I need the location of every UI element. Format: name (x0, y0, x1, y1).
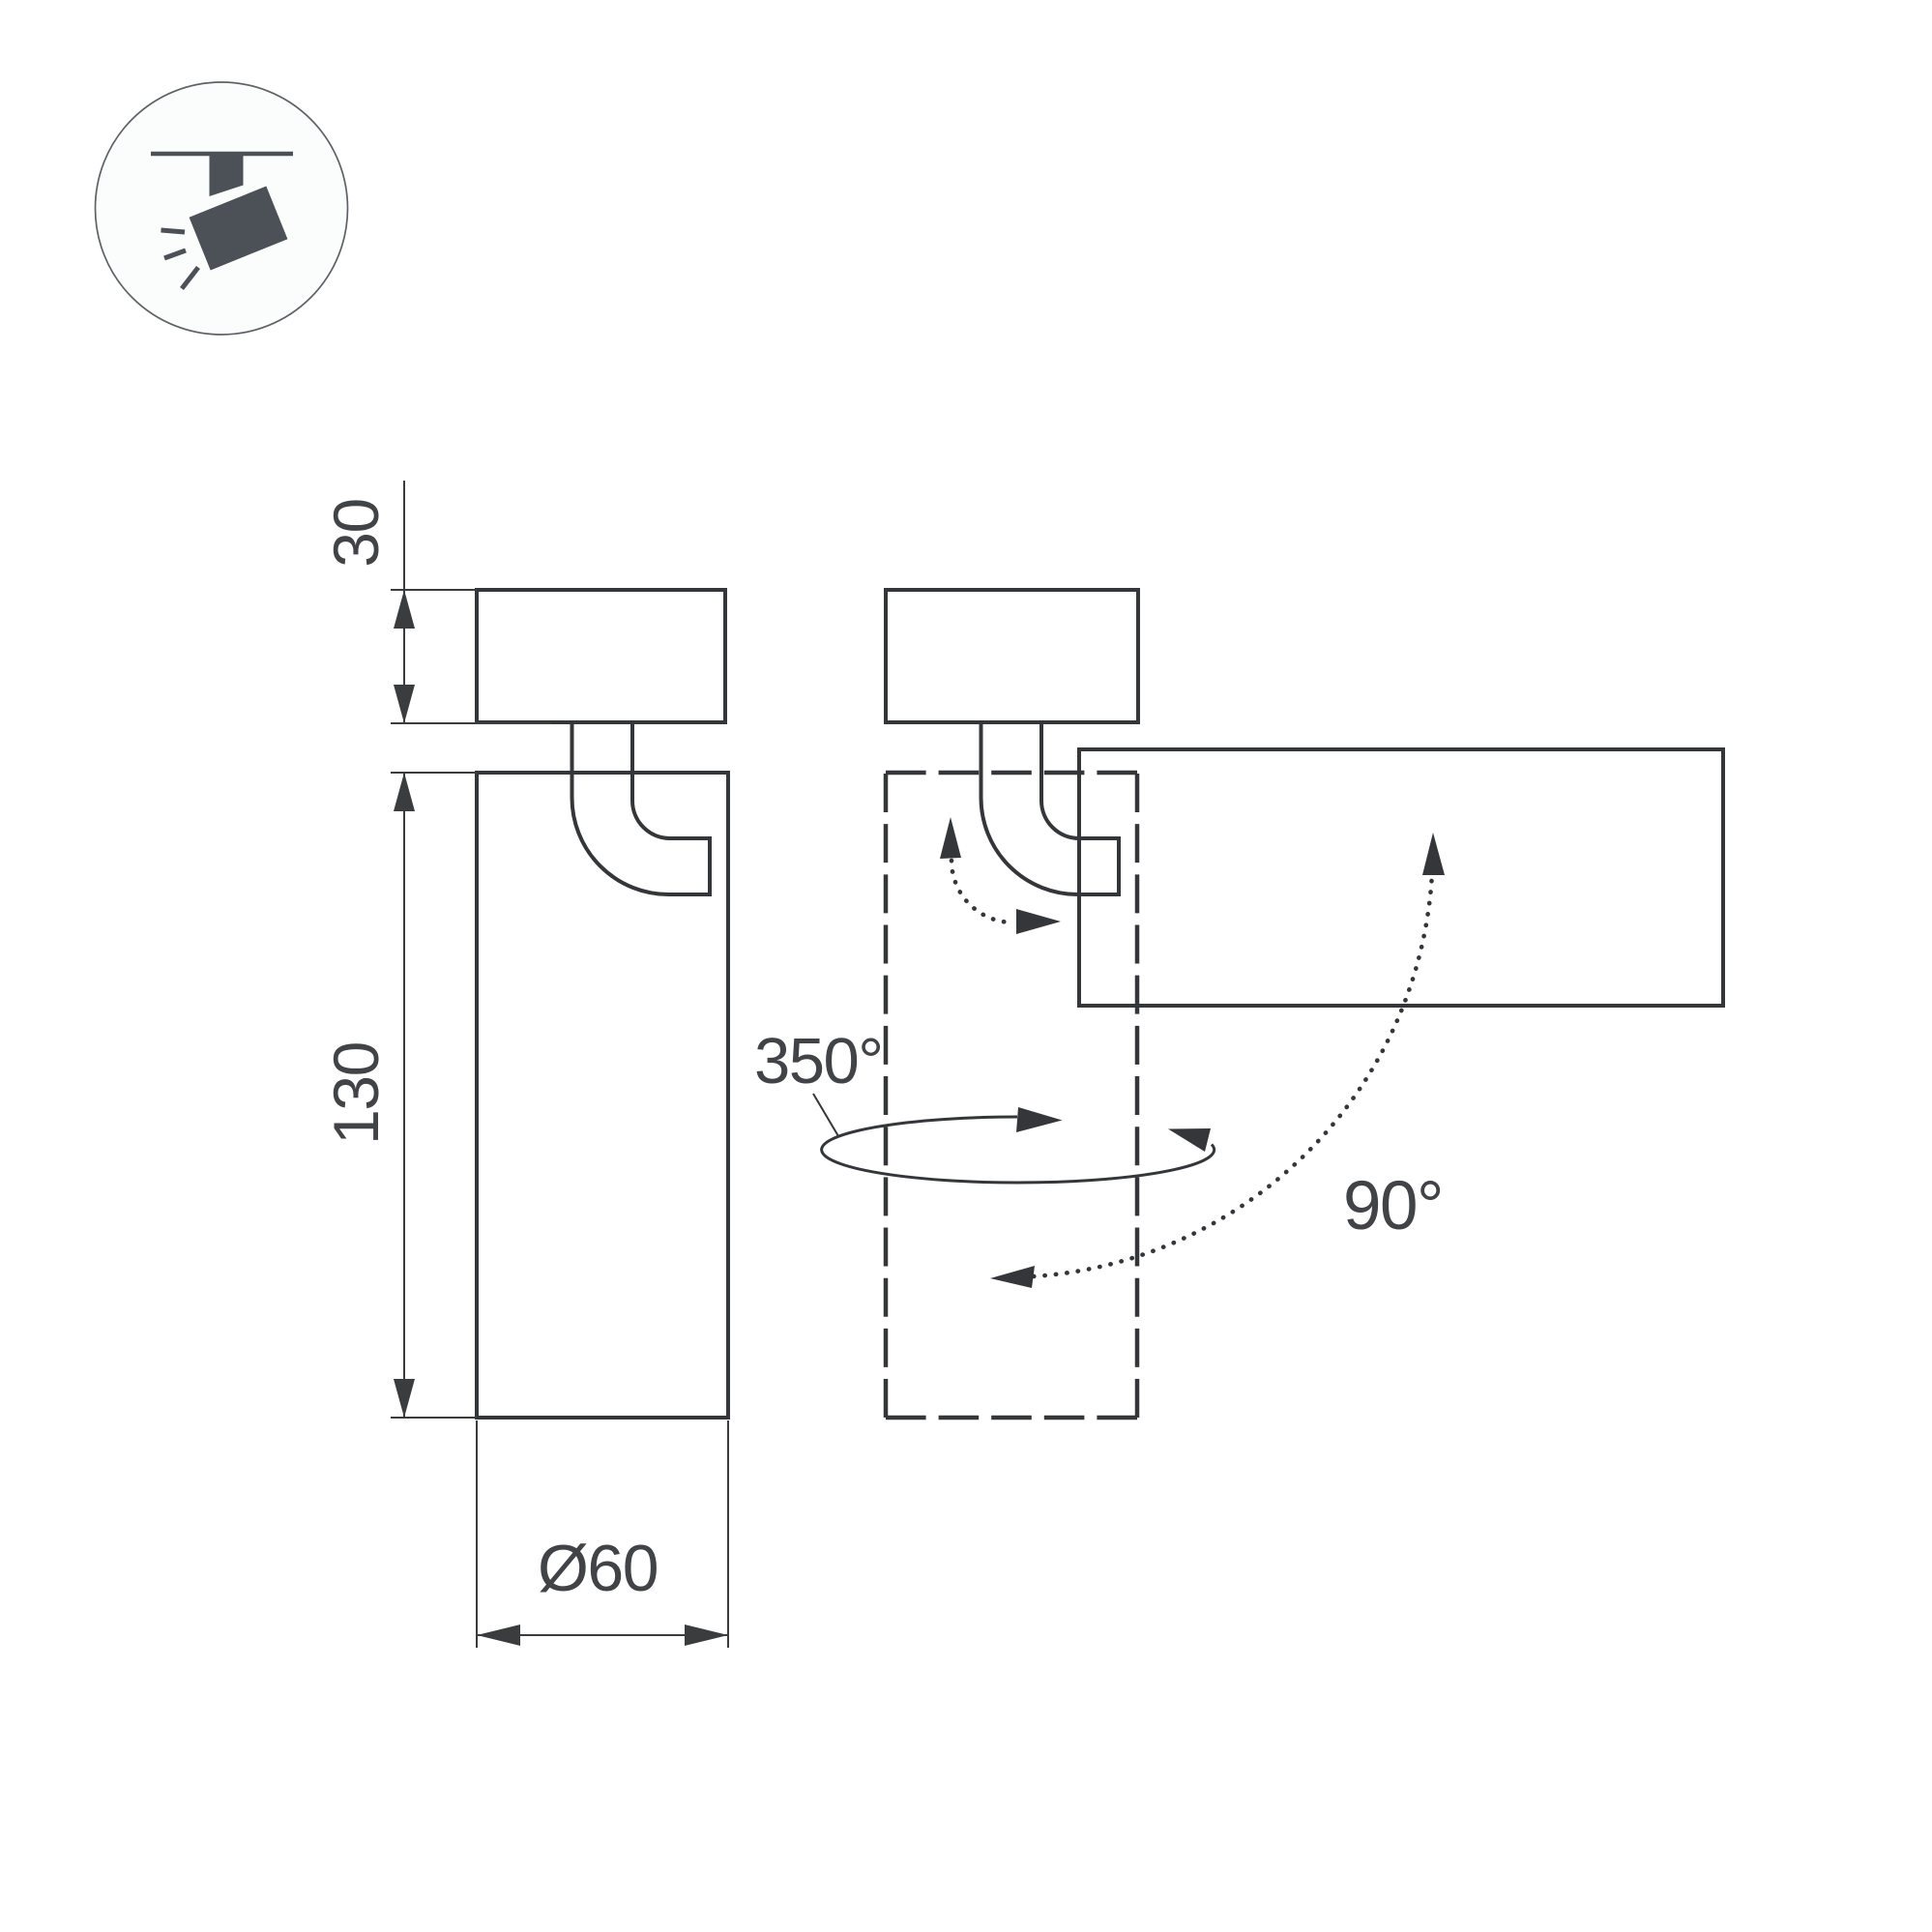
svg-text:350°: 350° (754, 1025, 883, 1098)
svg-text:30: 30 (320, 499, 392, 567)
svg-text:130: 130 (320, 1042, 392, 1145)
svg-text:Ø60: Ø60 (538, 1532, 658, 1605)
svg-text:90°: 90° (1343, 1168, 1443, 1244)
